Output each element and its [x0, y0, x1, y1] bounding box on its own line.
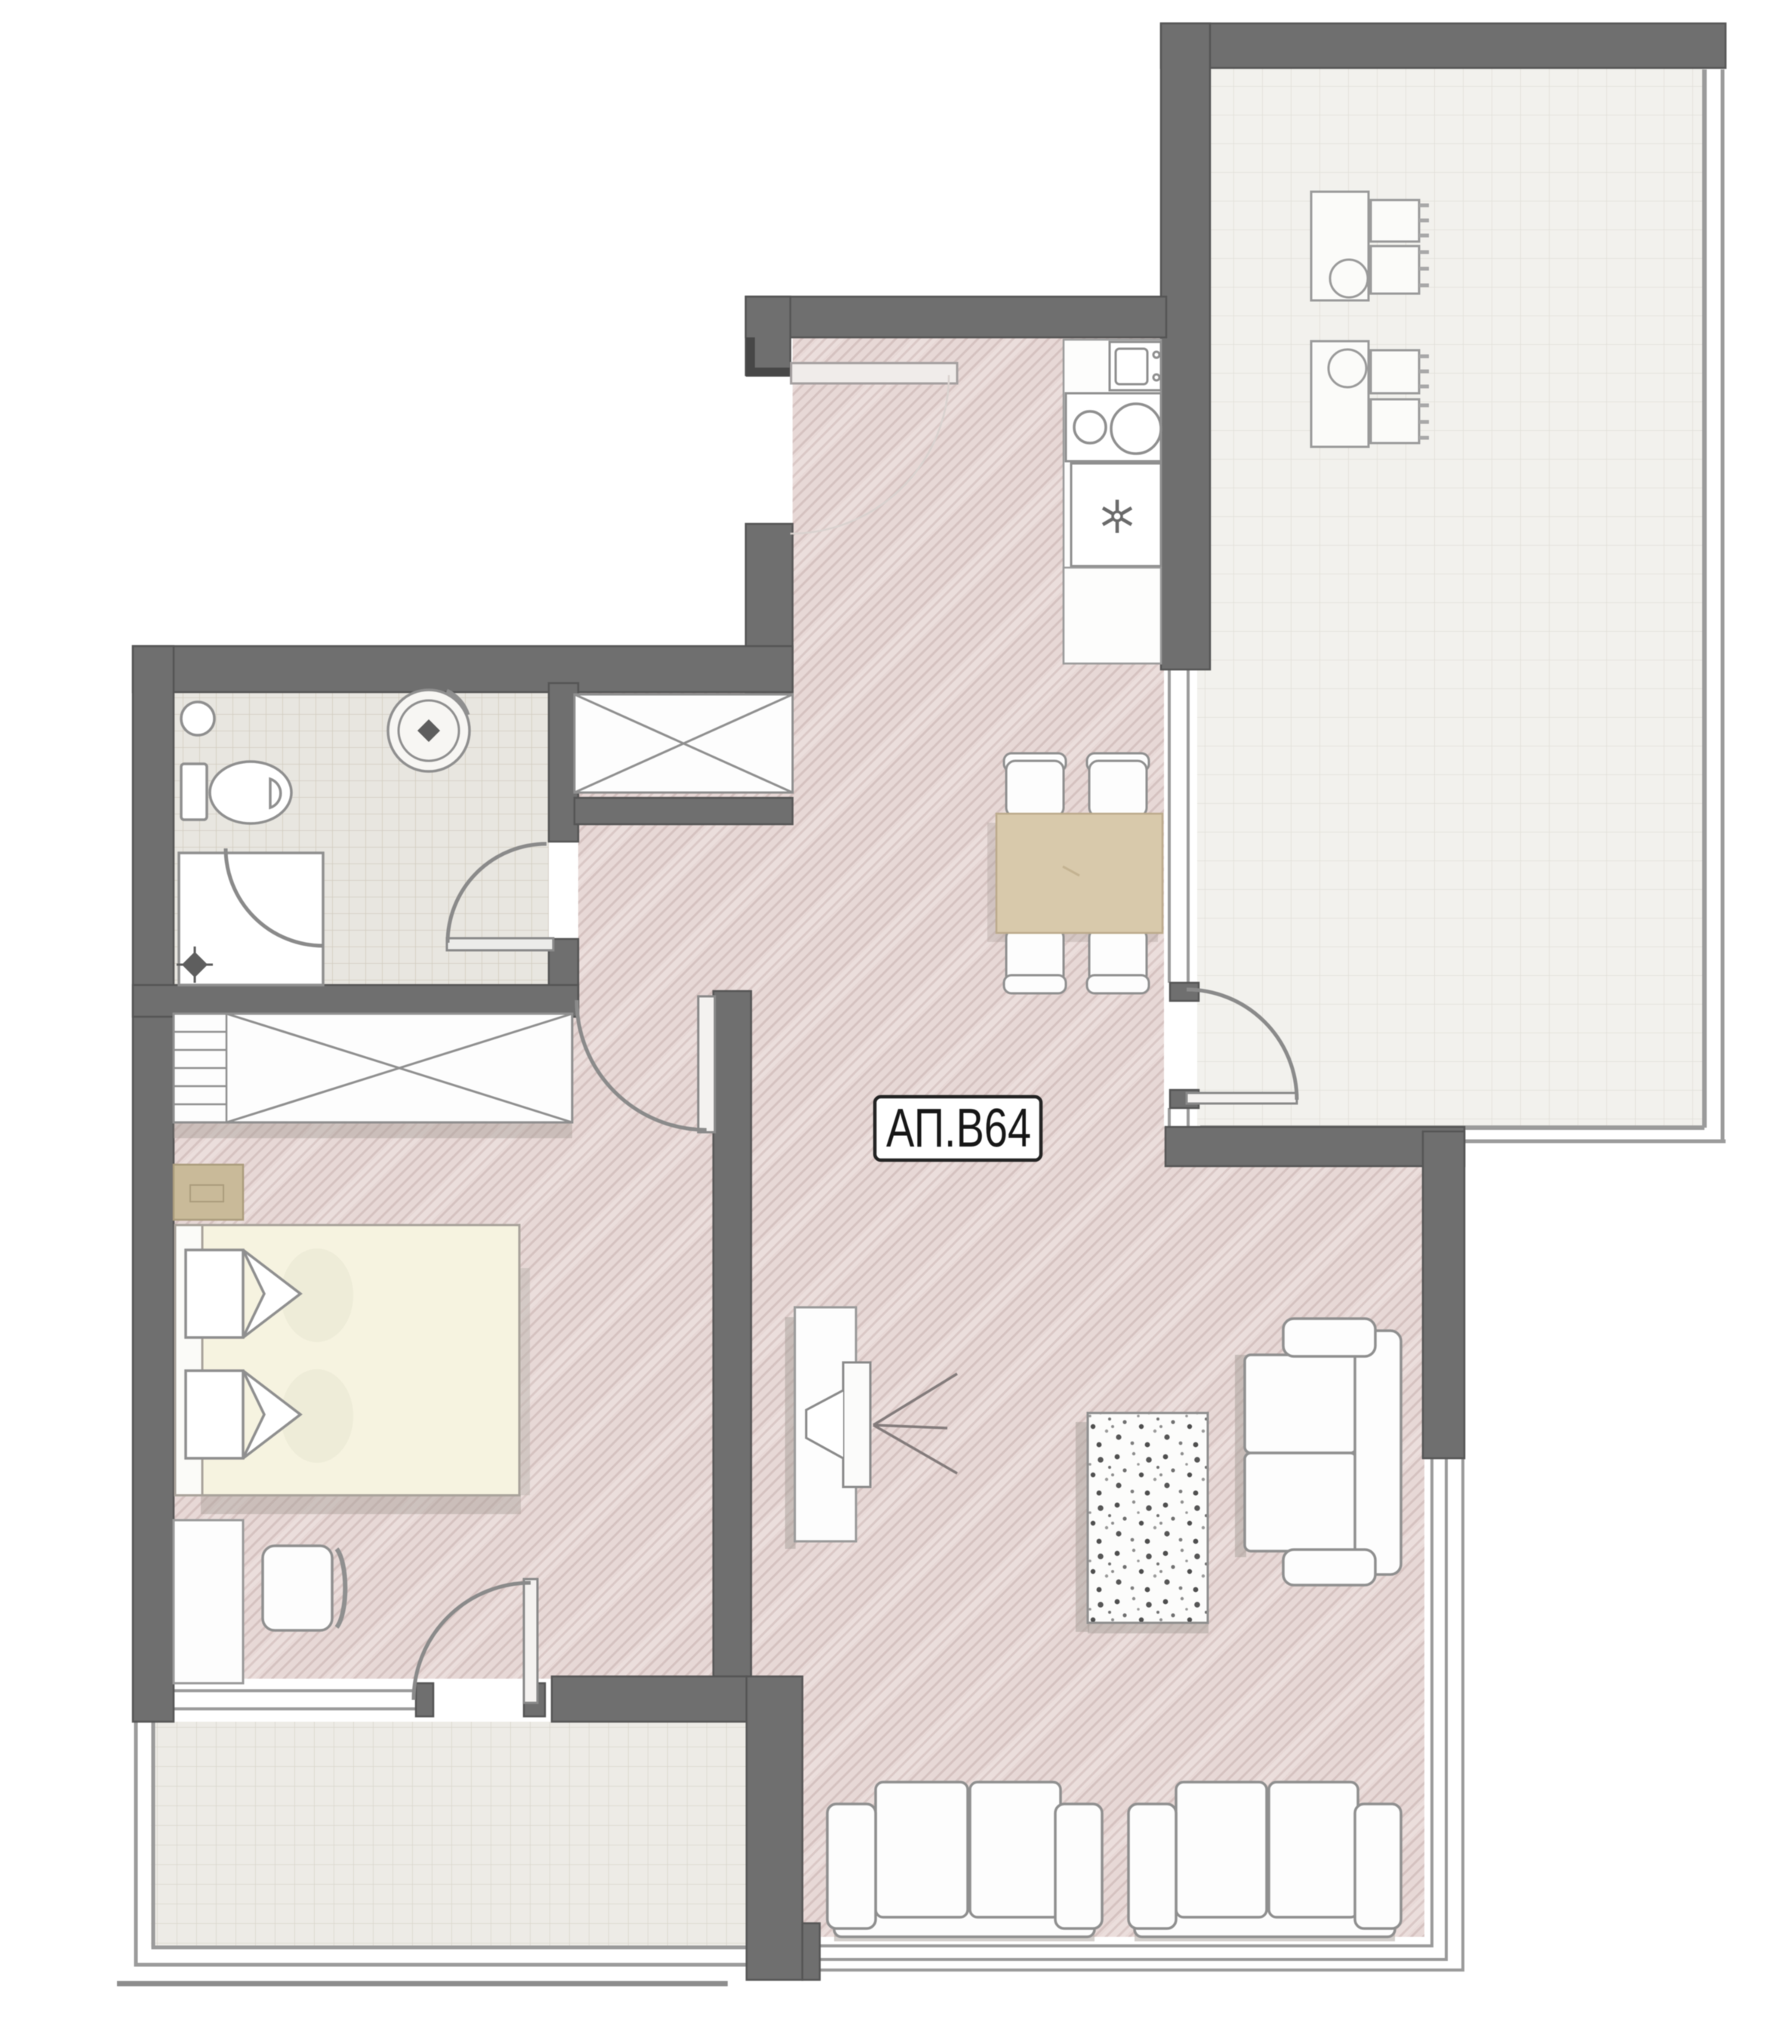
svg-text:АП.В64: АП.В64	[886, 1098, 1031, 1159]
